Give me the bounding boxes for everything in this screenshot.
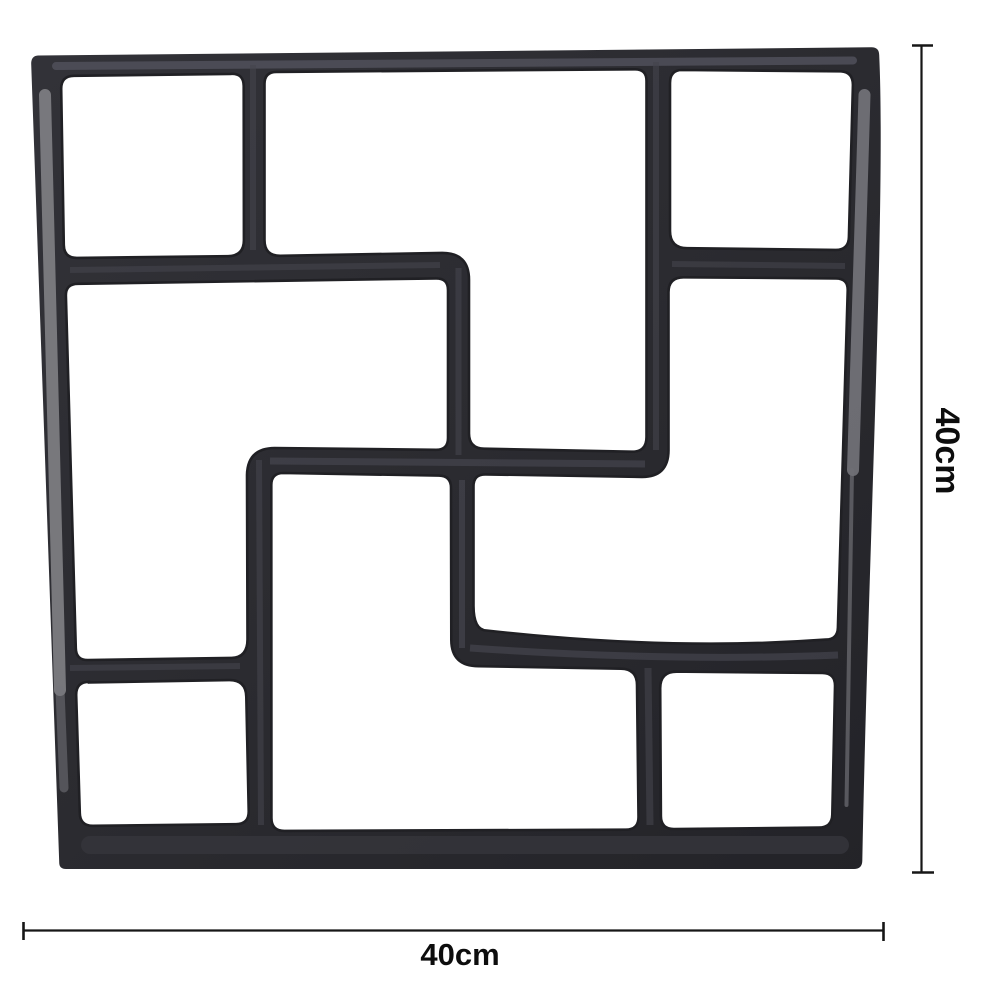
svg-text:40cm: 40cm (420, 937, 499, 972)
svg-text:40cm: 40cm (928, 408, 966, 495)
